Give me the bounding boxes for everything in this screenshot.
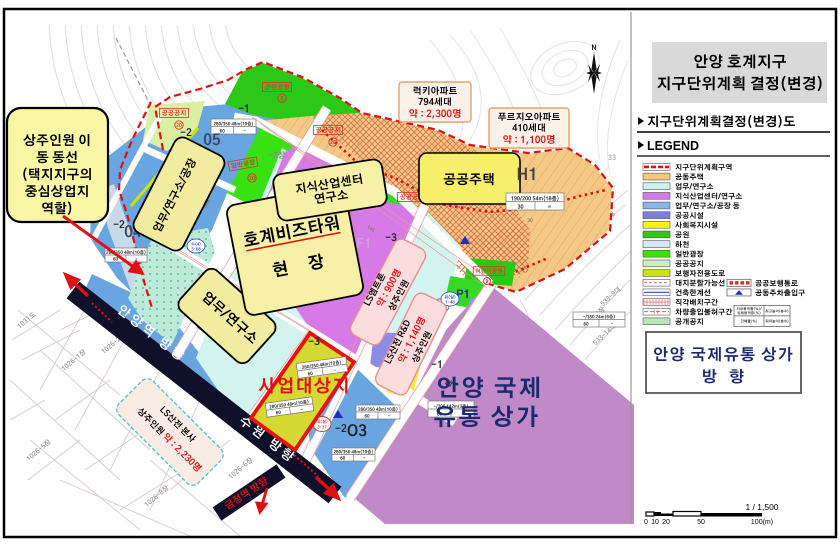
svg-text:LEGEND: LEGEND — [647, 139, 699, 153]
svg-text:0: 0 — [644, 519, 648, 526]
svg-text:10: 10 — [651, 519, 659, 526]
svg-text:1 / 1,500: 1 / 1,500 — [745, 502, 778, 512]
svg-text:50: 50 — [697, 519, 705, 526]
svg-text:100(m): 100(m) — [751, 519, 773, 526]
svg-text:20: 20 — [662, 519, 670, 526]
